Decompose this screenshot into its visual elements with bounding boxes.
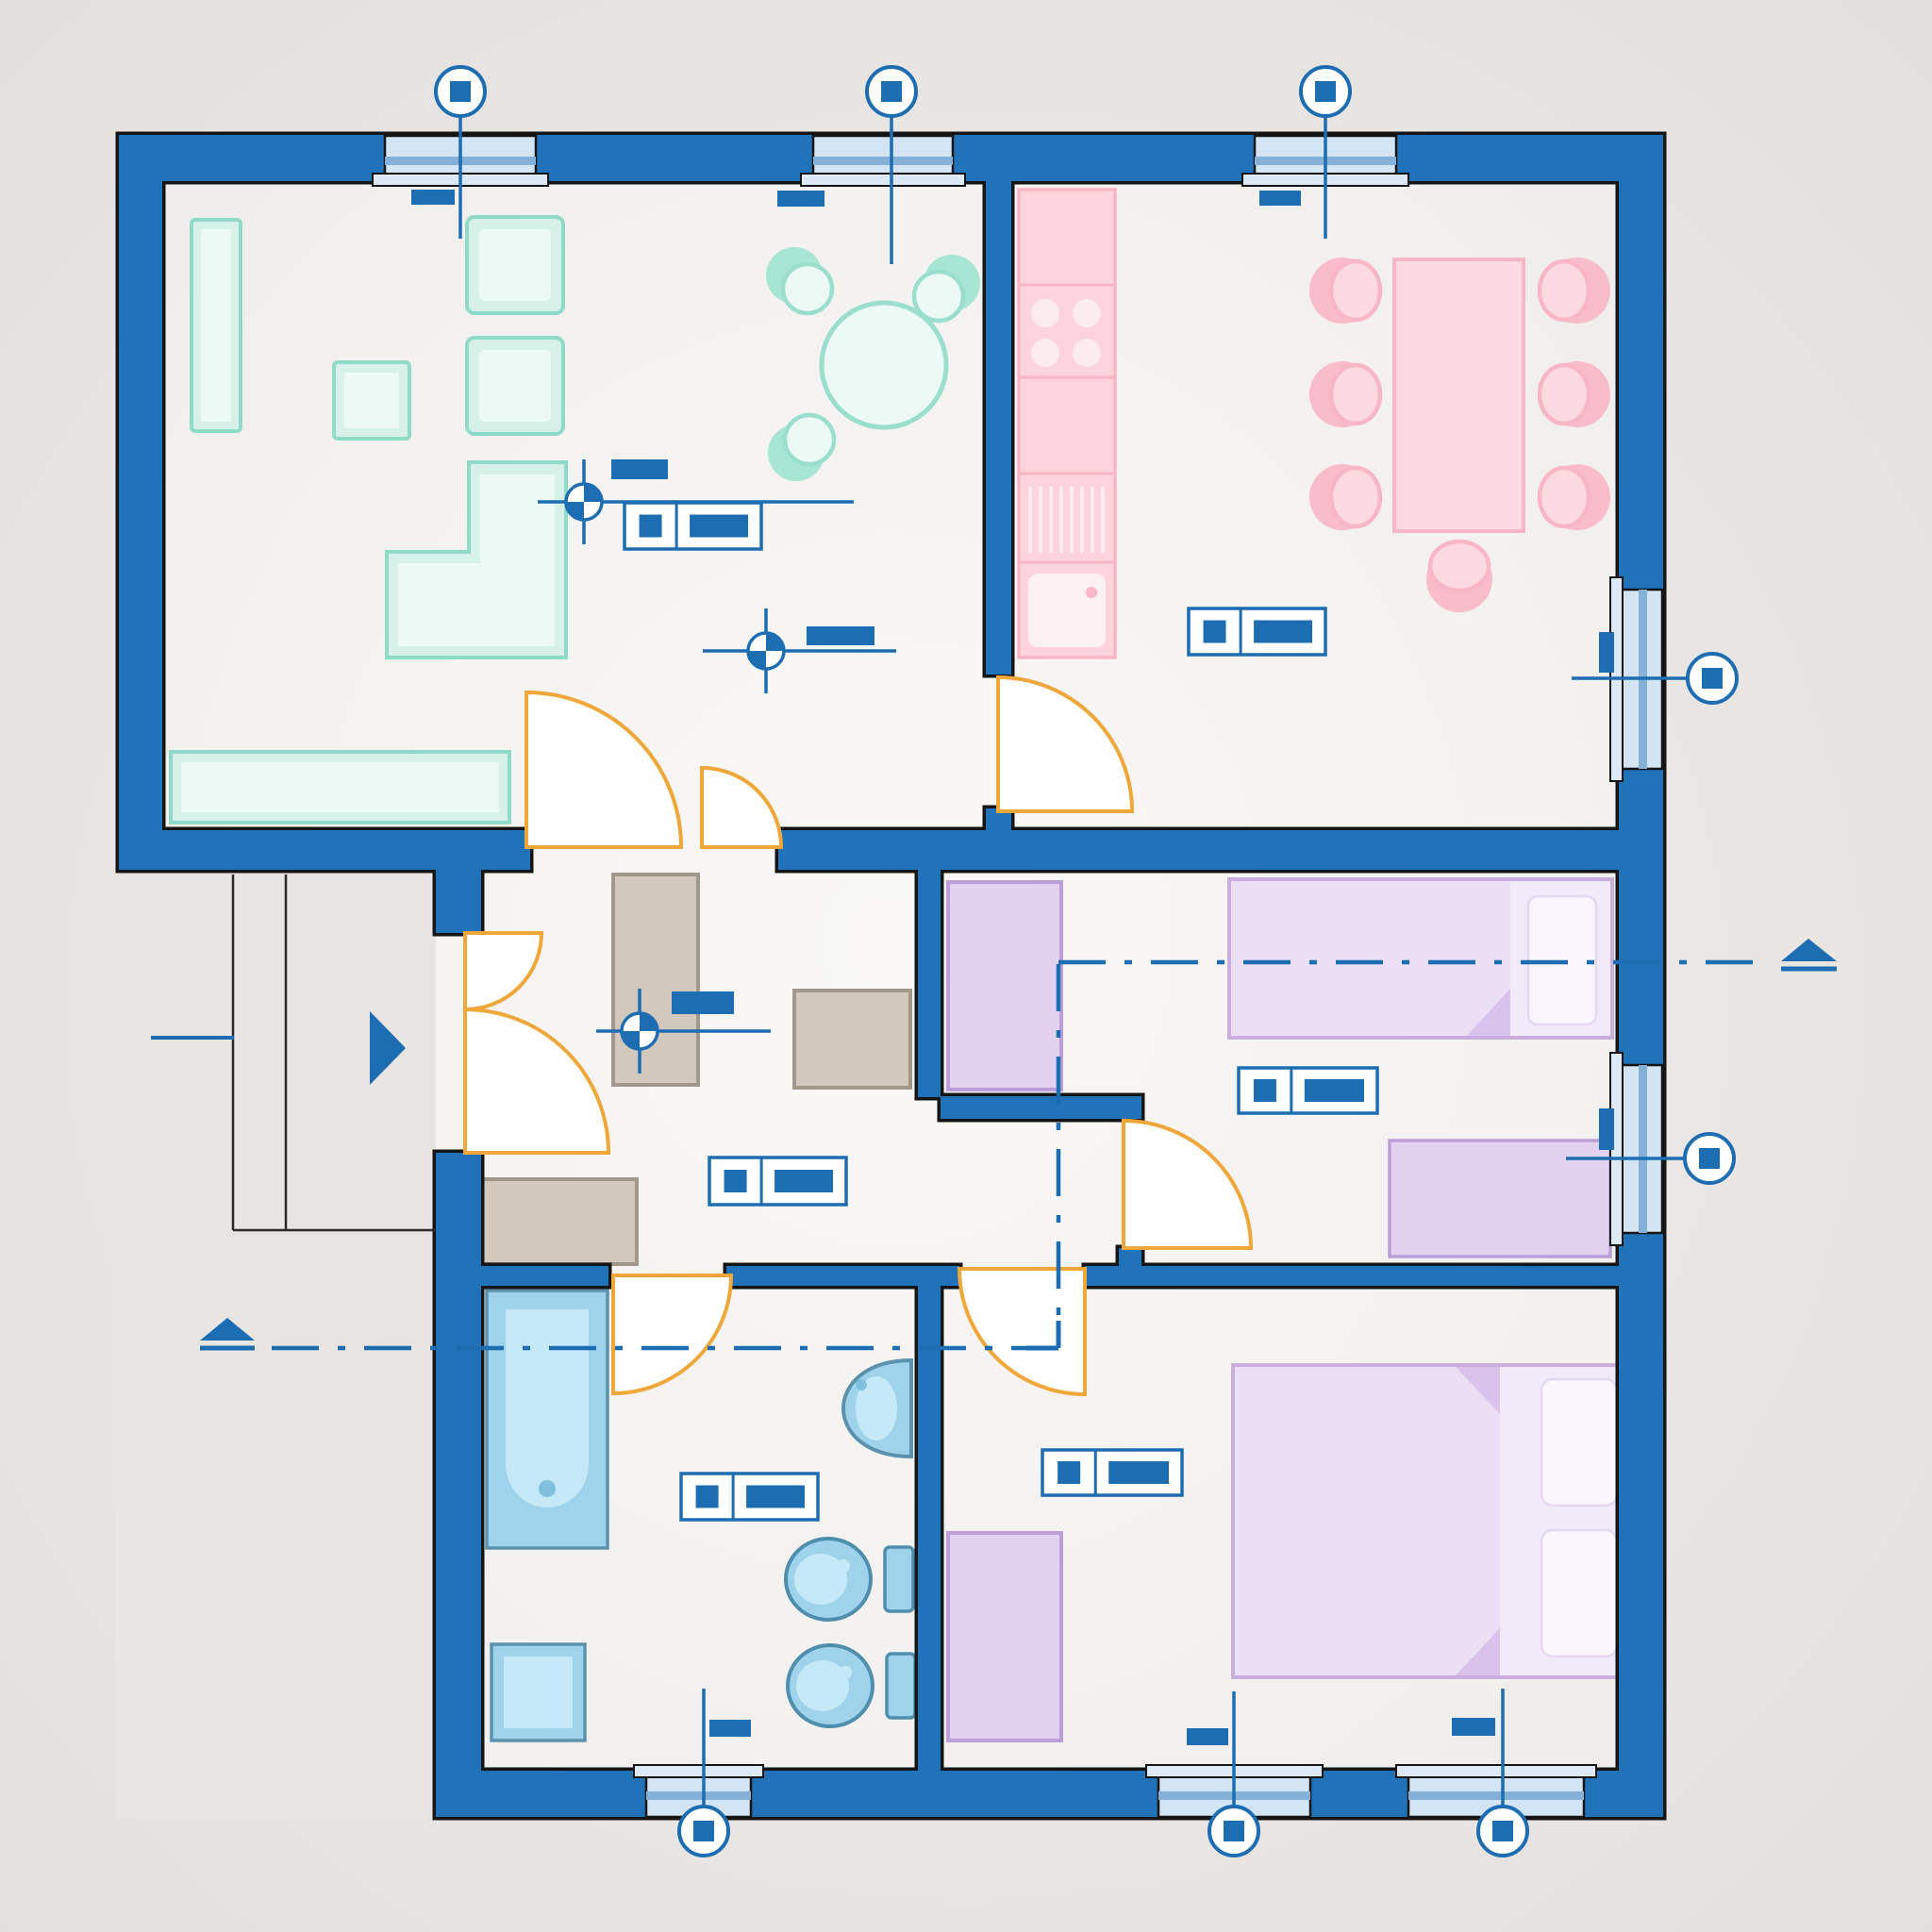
wall-segment [1619,135,1663,1771]
bedroom2-pillow [1541,1379,1617,1506]
hall-radiator-unit-cell-bar [774,1170,833,1192]
window-living-2-glass [813,157,953,165]
grid-marker-top-2-square [881,81,902,102]
dining-chair-4 [1540,261,1589,320]
stove-burner [1073,299,1101,327]
window-bedroom2-2-glass [1408,1791,1584,1800]
grid-marker-bottom-1-square [693,1821,714,1841]
radiator-bar [709,1720,751,1737]
bedroom2-pillow [1541,1530,1617,1657]
wall-segment [778,830,1011,870]
grid-marker-top-1-square [450,81,471,102]
bedroom2-radiator-unit-cell-square [1058,1461,1080,1484]
survey-point-hall-label [672,991,734,1014]
bathroom-radiator-unit-cell-bar [746,1486,805,1508]
bedroom1-radiator-unit-cell-bar [1305,1079,1364,1102]
radiator-bar [411,190,455,205]
living-radiator-unit-cell-bar [690,515,748,538]
shower-tray-basin [504,1657,573,1728]
kitchen-radiator-unit-cell-bar [1254,621,1312,643]
radiator-bar [777,191,824,207]
wall-segment [726,1266,959,1286]
wall-segment [918,870,941,1097]
porch-cutout [115,870,436,1819]
floor-plan-canvas [0,0,1932,1932]
wall-segment [436,1153,481,1771]
grid-marker-bottom-3-square [1492,1821,1513,1841]
hall-square-cabinet [794,991,910,1088]
radiator-bar [1187,1728,1228,1745]
toilet-1-tank [885,1547,913,1611]
radiator-bar [1259,191,1301,206]
toilet-1-flush [837,1559,850,1573]
radiator-bar [1599,632,1614,673]
kitchen-sink-faucet [1086,587,1097,598]
bedroom2-blanket [1235,1367,1500,1675]
grid-marker-east-1-square [1702,668,1723,689]
dining-table [1394,259,1524,531]
bathtub-basin [506,1309,589,1507]
radiator-bar [1599,1108,1614,1150]
living-radiator-unit-cell-square [640,515,662,538]
wall-segment [119,830,530,870]
window-living-2-sill [801,174,965,186]
section-triangle-east [1781,939,1837,961]
wall-segment [1119,1248,1141,1266]
dining-chair-7 [1430,541,1489,591]
radiator-bar [1452,1718,1495,1736]
wall-segment [918,1266,941,1771]
living-chair-2 [785,415,834,464]
dining-chair-6 [1540,468,1589,526]
wall-segment [941,1096,1141,1119]
bedroom2-wardrobe [948,1533,1061,1740]
living-chair-1 [783,264,832,313]
wall-segment [1011,830,1619,870]
window-bathroom-glass [646,1791,751,1800]
living-armchair-1-seat [479,229,551,301]
dining-chair-1 [1331,261,1380,320]
stove-burner [1031,299,1059,327]
floor-plan-drawing [0,0,1932,1932]
bedroom1-radiator-unit-cell-square [1254,1079,1276,1102]
survey-point-living-1-label [611,459,668,479]
wall-segment [119,135,162,870]
grid-marker-top-3-square [1315,81,1336,102]
wall-segment [436,870,481,933]
bedroom1-blanket [1231,881,1510,1036]
living-chair-3 [914,272,963,321]
grid-marker-bottom-2-square [1224,1821,1244,1841]
wall-segment [986,181,1011,675]
window-bathroom-sill [634,1765,763,1777]
bedroom1-wardrobe [948,882,1061,1090]
bathtub-drain [539,1480,556,1497]
bathroom-radiator-unit-cell-square [696,1486,719,1508]
dining-chair-5 [1540,365,1589,424]
survey-point-living-2-label [807,626,874,645]
dining-chair-3 [1331,468,1380,526]
dining-chair-2 [1331,365,1380,424]
bedroom2-radiator-unit-cell-bar [1108,1461,1169,1484]
toilet-2-tank [887,1654,915,1718]
window-bedroom2-2-sill [1396,1765,1596,1777]
stove-burner [1031,339,1059,367]
wall-segment [481,1266,608,1286]
hall-radiator-unit-cell-square [724,1170,747,1192]
living-sideboard-top [181,762,499,812]
living-shelf-top [201,229,231,422]
living-side-table-top [344,373,399,428]
hall-tall-cabinet [613,874,698,1085]
stove-burner [1073,339,1101,367]
toilet-2-flush [839,1666,852,1679]
bathroom-sink-faucet [856,1379,867,1391]
wall-segment [1085,1266,1619,1286]
grid-marker-east-2-square [1699,1148,1720,1169]
kitchen-sink-basin [1028,574,1106,647]
living-armchair-2-seat [479,350,551,422]
kitchen-radiator-unit-cell-square [1204,621,1226,643]
hall-low-cabinet [472,1179,637,1264]
window-bedroom1-east-glass [1639,1065,1647,1233]
living-round-table [822,303,946,427]
